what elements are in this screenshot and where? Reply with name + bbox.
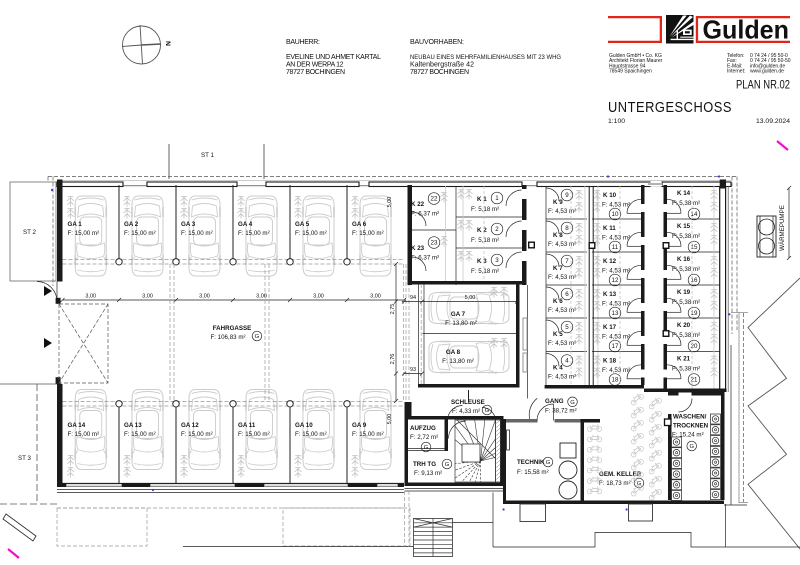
svg-text:F: 4,53 m²: F: 4,53 m² [548,374,576,381]
svg-text:GA 6: GA 6 [352,221,367,228]
svg-text:F: 15,00 m²: F: 15,00 m² [124,230,156,237]
svg-text:www.gulden.de: www.gulden.de [750,69,784,75]
svg-text:F: 13,80 m²: F: 13,80 m² [445,320,477,327]
svg-text:G: G [689,444,694,450]
svg-text:5: 5 [565,324,569,331]
svg-text:11: 11 [612,244,619,251]
svg-text:GA 4: GA 4 [238,221,253,228]
svg-text:F: 5,18 m²: F: 5,18 m² [471,206,499,213]
svg-text:23: 23 [431,240,438,247]
svg-text:5,00: 5,00 [465,295,476,301]
svg-text:7: 7 [565,258,569,265]
svg-text:UNTERGESCHOSS: UNTERGESCHOSS [608,100,732,116]
svg-text:F: 4,53 m²: F: 4,53 m² [602,202,630,209]
svg-text:F: 5,18 m²: F: 5,18 m² [471,268,499,275]
svg-text:Gulden: Gulden [703,15,790,45]
svg-text:3,00: 3,00 [142,294,153,300]
svg-text:1:100: 1:100 [608,118,625,125]
svg-text:TECHNIK: TECHNIK [517,459,545,466]
svg-text:K 23: K 23 [411,245,425,252]
svg-text:GEM. KELLER: GEM. KELLER [599,471,642,478]
svg-text:F: 15,00 m²: F: 15,00 m² [68,230,100,237]
svg-text:K 3: K 3 [477,258,487,265]
svg-text:F: 5,38 m²: F: 5,38 m² [672,266,700,273]
svg-text:F: 13,80 m²: F: 13,80 m² [442,358,474,365]
svg-text:12: 12 [612,277,619,284]
svg-text:F: 2,72 m²: F: 2,72 m² [410,434,438,441]
svg-text:GA 5: GA 5 [295,221,310,228]
svg-text:GA 9: GA 9 [352,422,367,429]
svg-text:K 12: K 12 [603,258,617,265]
svg-text:GA 12: GA 12 [181,422,199,429]
svg-text:78727 BOCHINGEN: 78727 BOCHINGEN [286,69,345,76]
svg-text:GA 8: GA 8 [446,349,461,356]
svg-text:K 11: K 11 [603,225,616,232]
svg-text:F: 15,00 m²: F: 15,00 m² [238,431,270,438]
svg-text:TRH TG: TRH TG [413,461,436,468]
svg-text:GA 11: GA 11 [238,422,256,429]
svg-text:F: 106,83 m²: F: 106,83 m² [210,334,245,341]
svg-text:F: 6,37 m²: F: 6,37 m² [411,211,439,218]
svg-text:F: 5,38 m²: F: 5,38 m² [672,366,700,373]
svg-text:9: 9 [565,192,569,199]
svg-text:F: 5,18 m²: F: 5,18 m² [471,237,499,244]
svg-text:F: 15,00 m²: F: 15,00 m² [295,431,327,438]
svg-text:F: 15,00 m²: F: 15,00 m² [181,431,213,438]
svg-text:F: 4,53 m²: F: 4,53 m² [602,334,630,341]
svg-text:3,00: 3,00 [370,294,381,300]
svg-text:K 4: K 4 [553,365,563,372]
svg-text:ST 3: ST 3 [18,455,32,462]
svg-text:GA 7: GA 7 [451,311,466,318]
svg-text:K 20: K 20 [677,322,691,329]
svg-text:93: 93 [410,367,416,373]
svg-text:K 13: K 13 [603,291,617,298]
svg-text:FAHRGASSE: FAHRGASSE [213,325,252,332]
svg-text:GA 2: GA 2 [124,221,139,228]
svg-text:5,00: 5,00 [387,414,393,425]
svg-text:F: 4,53 m²: F: 4,53 m² [548,241,576,248]
svg-text:N: N [164,41,171,46]
svg-text:78727 BOCHINGEN: 78727 BOCHINGEN [410,69,469,76]
svg-text:TROCKNEN: TROCKNEN [673,423,709,430]
svg-text:EVELINE UND AHMET KARTAL: EVELINE UND AHMET KARTAL [286,54,381,61]
svg-text:F: 4,53 m²: F: 4,53 m² [602,301,630,308]
svg-text:17: 17 [612,343,619,350]
svg-text:K 17: K 17 [603,324,617,331]
svg-text:2: 2 [495,226,499,233]
svg-text:13.09.2024: 13.09.2024 [756,118,790,125]
svg-text:GA 13: GA 13 [124,422,142,429]
svg-text:F: 9,13 m²: F: 9,13 m² [414,470,442,477]
svg-text:F: 4,53 m²: F: 4,53 m² [602,235,630,242]
svg-text:GA 1: GA 1 [68,221,83,228]
svg-text:GA 10: GA 10 [295,422,313,429]
svg-text:WASCHEN/: WASCHEN/ [673,414,707,421]
svg-text:BAUVORHABEN:: BAUVORHABEN: [410,39,464,46]
svg-text:F: 5,38 m²: F: 5,38 m² [672,299,700,306]
svg-text:K 15: K 15 [677,223,691,230]
svg-text:F: 38,72 m²: F: 38,72 m² [545,407,577,414]
svg-text:F: 15,00 m²: F: 15,00 m² [238,230,270,237]
svg-text:K 16: K 16 [677,256,691,263]
svg-text:K 9: K 9 [553,199,563,206]
svg-text:GA 3: GA 3 [181,221,196,228]
svg-text:K 21: K 21 [677,356,691,363]
svg-text:K 19: K 19 [677,289,691,296]
svg-text:3,00: 3,00 [313,294,324,300]
svg-text:1: 1 [495,195,499,202]
svg-text:F: 15,00 m²: F: 15,00 m² [181,230,213,237]
svg-text:K 22: K 22 [411,201,425,208]
svg-text:F: 4,53 m²: F: 4,53 m² [548,208,576,215]
svg-text:PLAN NR.02: PLAN NR.02 [736,80,790,92]
svg-text:ST 2: ST 2 [23,229,37,236]
svg-text:G: G [424,445,429,451]
svg-text:78549 Spaichingen: 78549 Spaichingen [609,69,652,75]
svg-text:10: 10 [612,211,619,218]
svg-text:G: G [546,460,551,466]
svg-text:F: 15,00 m²: F: 15,00 m² [352,431,384,438]
svg-text:F: 4,53 m²: F: 4,53 m² [602,268,630,275]
svg-text:BAUHERR:: BAUHERR: [286,39,320,46]
svg-text:K 18: K 18 [603,358,617,365]
svg-text:F: 15,00 m²: F: 15,00 m² [124,431,156,438]
svg-text:AUFZUG: AUFZUG [410,425,436,432]
svg-text:K 1: K 1 [477,196,487,203]
svg-text:F: 15,58 m²: F: 15,58 m² [517,469,549,476]
svg-text:4: 4 [565,358,569,365]
svg-text:G: G [255,334,260,340]
svg-text:F: 6,37 m²: F: 6,37 m² [411,255,439,262]
svg-text:GA 14: GA 14 [68,422,86,429]
svg-text:Internet:: Internet: [727,69,745,75]
svg-text:G: G [445,462,450,468]
svg-text:K 5: K 5 [553,331,563,338]
svg-text:3,00: 3,00 [199,294,210,300]
svg-text:ST 1: ST 1 [201,152,215,159]
svg-text:2,75: 2,75 [390,304,396,315]
svg-text:F: 4,53 m²: F: 4,53 m² [602,367,630,374]
svg-text:2,76: 2,76 [390,354,396,365]
svg-text:94: 94 [410,295,416,301]
svg-text:F: 5,38 m²: F: 5,38 m² [672,233,700,240]
svg-text:Kaltenbergstraße 42: Kaltenbergstraße 42 [410,61,474,68]
svg-text:22: 22 [431,196,438,203]
svg-text:6: 6 [565,291,569,298]
svg-text:K 10: K 10 [603,192,617,199]
svg-text:F: 5,38 m²: F: 5,38 m² [672,332,700,339]
svg-text:SCHLEUSE: SCHLEUSE [451,399,485,406]
svg-text:K 14: K 14 [677,190,691,197]
svg-text:NEUBAU EINES MEHRFAMILIENHAUSE: NEUBAU EINES MEHRFAMILIENHAUSES MIT 23 W… [410,55,561,61]
svg-text:3,00: 3,00 [85,294,96,300]
svg-text:F: 4,33 m²: F: 4,33 m² [452,408,480,415]
svg-text:F: 15,00 m²: F: 15,00 m² [68,431,100,438]
svg-text:K 8: K 8 [553,232,563,239]
svg-text:5,00: 5,00 [387,197,393,208]
svg-text:F: 15,00 m²: F: 15,00 m² [295,230,327,237]
svg-text:F: 4,53 m²: F: 4,53 m² [548,307,576,314]
svg-text:WÄRMEPUMPE: WÄRMEPUMPE [779,205,786,251]
svg-text:F: 15,00 m²: F: 15,00 m² [352,230,384,237]
svg-text:K 2: K 2 [477,227,487,234]
svg-text:GANG: GANG [545,398,564,405]
svg-text:F: 18,73 m²: F: 18,73 m² [599,480,631,487]
svg-text:F: 4,53 m²: F: 4,53 m² [548,274,576,281]
svg-text:K 7: K 7 [553,265,563,272]
svg-text:18: 18 [612,377,619,384]
svg-text:G: G [570,400,575,406]
svg-text:F: 4,53 m²: F: 4,53 m² [548,340,576,347]
svg-text:13: 13 [612,310,619,317]
svg-text:8: 8 [565,225,569,232]
svg-text:AN DER WERPA 12: AN DER WERPA 12 [286,61,344,68]
svg-text:3: 3 [495,257,499,264]
svg-text:F: 5,38 m²: F: 5,38 m² [672,200,700,207]
svg-text:K 6: K 6 [553,298,563,305]
